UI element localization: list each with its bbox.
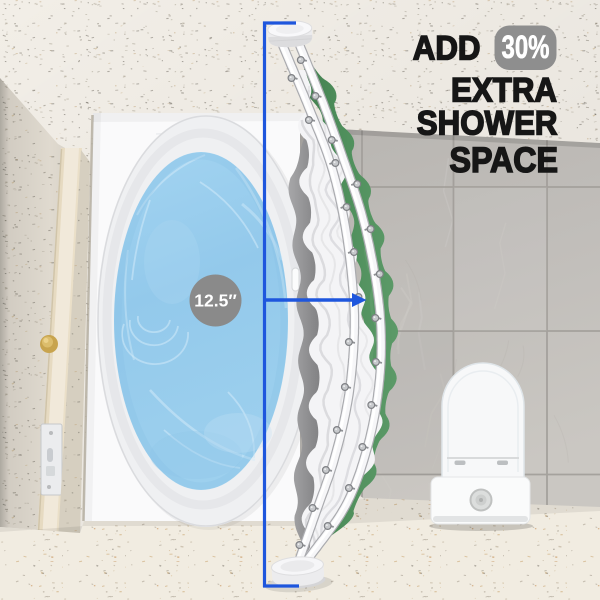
svg-text:SHOWER: SHOWER xyxy=(417,103,558,142)
svg-text:SPACE: SPACE xyxy=(450,142,558,181)
svg-text:12.5″: 12.5″ xyxy=(194,291,237,311)
svg-text:30%: 30% xyxy=(501,29,549,65)
svg-text:ADD: ADD xyxy=(413,28,481,67)
